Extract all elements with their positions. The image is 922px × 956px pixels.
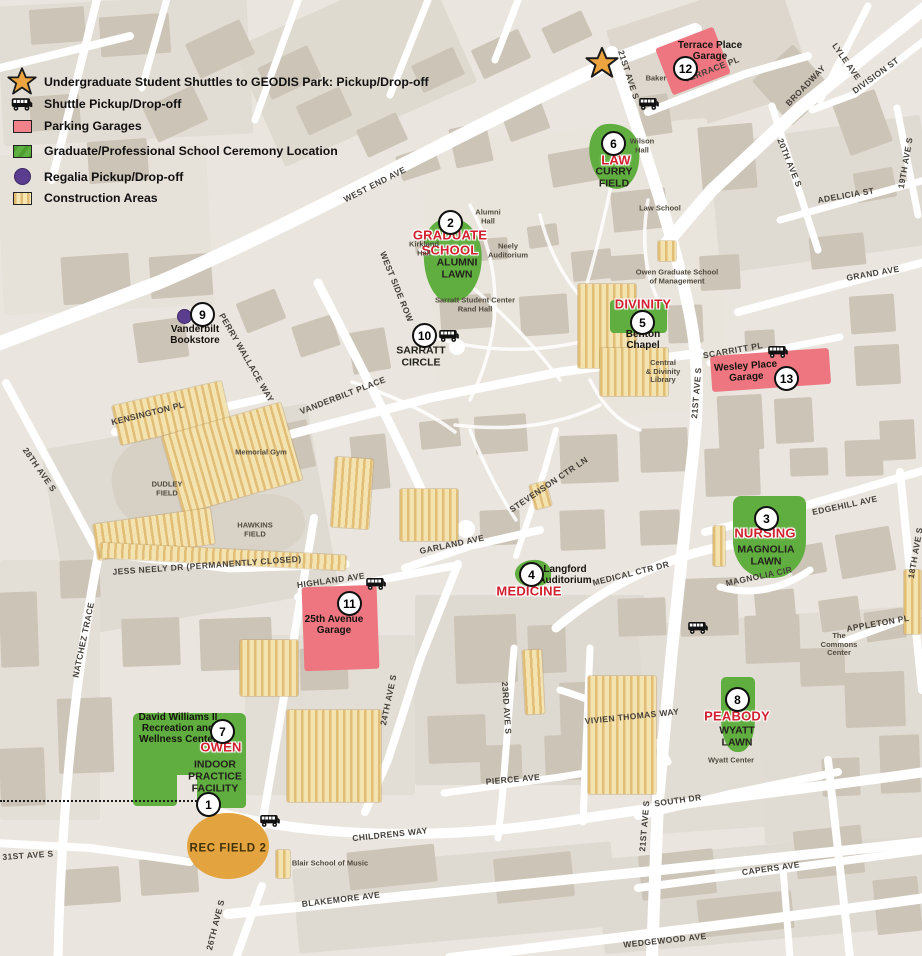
place-label: SARRATTCIRCLE [396,345,445,369]
label-line: Langford [538,564,591,575]
construction-icon [0,192,44,205]
place-label: Law School [639,205,681,214]
geodis-shuttle-star-icon[interactable] [585,47,619,86]
regalia-color-dot [14,168,31,185]
shuttle-icon [0,96,44,112]
place-label: KirklandHall [409,240,439,257]
construction-area [713,526,725,566]
place-label: Memorial Gym [235,449,287,458]
label-line: LAWN [737,556,794,568]
label-line: REC FIELD 2 [190,843,267,856]
legend-label: Graduate/Professional School Ceremony Lo… [44,144,338,158]
construction-area [522,650,544,715]
regalia-icon [0,168,44,185]
legend-item-regalia: Regalia Pickup/Drop-off [0,168,183,185]
map-marker-8[interactable]: 8 [725,687,750,712]
label-line: LAWN [437,269,478,281]
label-line: Hall [409,249,439,258]
place-label: Sarratt Student CenterRand Hall [435,296,515,313]
map-marker-11[interactable]: 11 [337,591,362,616]
label-line: Center [821,649,858,658]
legend-item-shuttle: Shuttle Pickup/Drop-off [0,96,181,112]
map-marker-4[interactable]: 4 [519,562,544,587]
construction-area [904,570,921,634]
map-marker-3[interactable]: 3 [754,506,779,531]
place-label: Owen Graduate Schoolof Management [636,268,719,285]
label-line: Library [646,376,681,385]
label-line: CIRCLE [396,357,445,369]
label-line: David Williams II [139,712,218,723]
place-label: HAWKINSFIELD [237,521,272,538]
place-label: DUDLEYFIELD [152,480,183,497]
label-line: LAWN [719,737,755,749]
construction-color-chip [13,192,32,205]
legend-label: Undergraduate Student Shuttles to GEODIS… [44,75,429,89]
shuttle-stop-icon[interactable] [439,328,460,348]
label-line: Wyatt Center [708,757,754,766]
label-line: Vanderbilt [170,324,219,335]
legend-label: Construction Areas [44,191,158,205]
construction-area [588,676,656,794]
map-marker-7[interactable]: 7 [210,719,235,744]
label-line: Hall [630,146,655,155]
label-line: Auditorium [538,575,591,586]
label-line: Recreation and [139,723,218,734]
label-line: ALUMNI [437,257,478,269]
star-icon [0,67,44,97]
label-line: Wellness Center [139,735,218,746]
label-line: Law School [639,205,681,214]
place-label: Blair School of Music [292,860,368,869]
label-line: INDOOR [188,759,242,771]
shuttle-stop-icon[interactable] [768,344,789,364]
legend-item-ceremony: Graduate/Professional School Ceremony Lo… [0,144,338,158]
place-label: WilsonHall [630,137,655,154]
place-label: Wyatt Center [708,757,754,766]
construction-area [240,640,298,696]
parking-color-chip [13,120,32,133]
map-marker-9[interactable]: 9 [190,302,215,327]
label-line: Hall [475,217,500,226]
place-label: REC FIELD 2 [190,843,267,856]
place-label: 25th AvenueGarage [305,614,364,636]
place-label: LangfordAuditorium [538,564,591,586]
label-line: Bookstore [170,335,219,346]
railroad-dotted-line [0,800,208,802]
label-line: Rand Hall [435,305,515,314]
shuttle-stop-icon[interactable] [639,96,660,116]
label-line: Baker [646,75,667,84]
label-line: Blair School of Music [292,860,368,869]
label-line: of Management [636,277,719,286]
label-line: 25th Avenue [305,614,364,625]
map-marker-12[interactable]: 12 [673,56,698,81]
place-label: ALUMNILAWN [437,257,478,281]
place-label: MAGNOLIALAWN [737,544,794,568]
map-marker-10[interactable]: 10 [412,323,437,348]
place-label: INDOORPRACTICEFACILITY [188,759,242,794]
map-marker-1[interactable]: 1 [196,792,221,817]
shuttle-stop-icon[interactable] [688,620,709,640]
place-label: TheCommonsCenter [821,632,858,658]
map-marker-6[interactable]: 6 [601,131,626,156]
label-line: Garage [305,625,364,636]
legend-label: Regalia Pickup/Drop-off [44,170,183,184]
map-marker-2[interactable]: 2 [438,210,463,235]
place-label: David Williams IIRecreation andWellness … [139,712,218,746]
label-line: WYATT [719,725,755,737]
legend-label: Shuttle Pickup/Drop-off [44,97,181,111]
label-line: PRACTICE [188,771,242,783]
label-line: CURRY [596,166,633,178]
label-line: Chapel [626,340,660,351]
ceremony-color-chip [13,145,32,158]
place-label: NeelyAuditorium [488,242,528,259]
legend-item-construction: Construction Areas [0,191,158,205]
legend-label: Parking Garages [44,119,142,133]
place-label: WYATTLAWN [719,725,755,749]
map-marker-5[interactable]: 5 [630,310,655,335]
ceremony-icon [0,145,44,158]
label-line: FIELD [237,530,272,539]
label-line: FIELD [152,489,183,498]
label-line: Auditorium [488,251,528,260]
place-label: Baker [646,75,667,84]
legend-item-star: Undergraduate Student Shuttles to GEODIS… [0,67,429,97]
label-line: FIELD [596,178,633,190]
campus-map: Undergraduate Student Shuttles to GEODIS… [0,0,922,956]
construction-area [658,241,676,261]
place-label: Central& DivinityLibrary [646,359,681,385]
label-line: MAGNOLIA [737,544,794,556]
map-marker-13[interactable]: 13 [774,366,799,391]
place-label: CURRYFIELD [596,166,633,190]
parking-icon [0,120,44,133]
shuttle-stop-icon[interactable] [366,576,387,596]
place-label: AlumniHall [475,208,500,225]
construction-area [331,457,374,529]
shuttle-stop-icon[interactable] [260,813,281,833]
construction-area [276,850,290,878]
place-label: VanderbiltBookstore [170,324,219,346]
label-line: Terrace Place [678,40,742,51]
construction-area [400,489,458,541]
legend-item-parking: Parking Garages [0,119,142,133]
label-line: Memorial Gym [235,449,287,458]
construction-area [287,710,381,802]
